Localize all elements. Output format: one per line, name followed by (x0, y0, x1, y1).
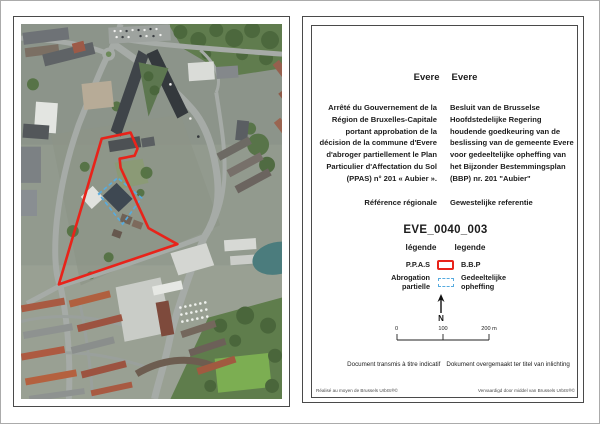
title-block-outer-frame: Evere Evere Arrêté du Gouvernement de la… (302, 16, 584, 403)
abrogation-blue-dashed-swatch (438, 278, 454, 287)
decree-title-fr: Arrêté du Gouvernement de la Région de B… (313, 102, 437, 185)
abrogation-swatch-cell (434, 278, 457, 287)
legend-item-ppas-label-fr: P.P.A.S (313, 261, 434, 270)
north-arrow-icon: N (433, 294, 449, 322)
ppas-red-outline-swatch (437, 260, 454, 270)
commune-name-nl: Evere (452, 72, 478, 83)
decree-title-row: Arrêté du Gouvernement de la Région de B… (313, 102, 578, 185)
aerial-photo (21, 24, 282, 399)
decree-title-nl: Besluit van de Brusselse Hoofdstedelijke… (450, 102, 578, 185)
scale-tick-100: 100 (438, 326, 447, 332)
scale-tick-0: 0 (395, 326, 398, 332)
legend-title-row: légende legende (313, 243, 578, 252)
legend-item-abrogation-label-nl: Gedeeltelijke opheffing (457, 274, 578, 291)
north-label: N (438, 314, 444, 322)
disclaimer-nl: Dokument overgemaakt ter titel van inlic… (446, 361, 569, 368)
credit-nl: Vervaardigd door middel van Brussels Urb… (478, 388, 575, 393)
commune-name-row: Evere Evere (313, 72, 578, 83)
disclaimer-fr: Document transmis à titre indicatif (347, 361, 440, 368)
commune-name-fr: Evere (414, 72, 440, 83)
title-block-content: Evere Evere Arrêté du Gouvernement de la… (313, 27, 578, 398)
legend: P.P.A.S B.B.P Abrogation partielle Gedee… (313, 260, 578, 291)
ppas-swatch-cell (434, 260, 457, 270)
reference-label-fr: Référence régionale (313, 198, 437, 207)
document-page: Evere Evere Arrêté du Gouvernement de la… (0, 0, 600, 424)
reference-row: Référence régionale Gewestelijke referen… (313, 198, 578, 207)
disclaimer-row: Document transmis à titre indicatif Doku… (313, 361, 578, 368)
credit-fr: Réalisé au moyen de Brussels UrbIS®© (316, 388, 398, 393)
aerial-map-panel (13, 16, 290, 407)
scale-bar: 0 100 200 m (393, 323, 503, 345)
legend-item-ppas-label-nl: B.B.P (457, 261, 578, 270)
legend-title-fr: légende (406, 243, 437, 252)
reference-label-nl: Gewestelijke referentie (450, 198, 578, 207)
reference-code: EVE_0040_003 (313, 224, 578, 236)
scale-tick-200: 200 m (481, 326, 497, 332)
legend-item-abrogation-label-fr: Abrogation partielle (313, 274, 434, 291)
roundabout (102, 48, 115, 61)
title-block-inner-frame: Evere Evere Arrêté du Gouvernement de la… (311, 25, 578, 398)
legend-title-nl: legende (455, 243, 486, 252)
